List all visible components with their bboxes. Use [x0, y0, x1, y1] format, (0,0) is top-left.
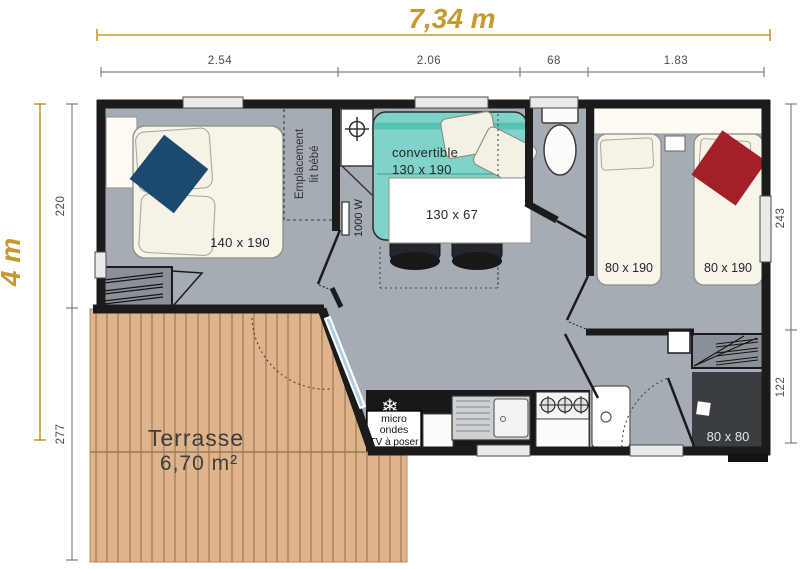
toilet-bowl — [544, 125, 576, 175]
wall-column — [668, 331, 690, 353]
microwave-label-3: TV à poser — [370, 437, 420, 448]
bed-twin-1-label: 80 x 190 — [605, 261, 653, 275]
heater-label: 1000 W — [353, 198, 365, 237]
window — [630, 445, 683, 456]
microwave-label-2: ondes — [380, 424, 409, 436]
cabinet — [536, 419, 589, 448]
terrace-name: Terrasse — [148, 425, 244, 451]
nightstand — [665, 136, 685, 151]
dim-right-1: 243 — [775, 208, 787, 229]
baby-bed-label-1: Emplacement — [294, 128, 306, 199]
cabinet — [423, 414, 453, 448]
window — [183, 97, 243, 108]
floor-plan-svg: 140 x 190 Emplacement lit bébé 1000 W co… — [0, 0, 800, 569]
sofa-label-1: convertible — [392, 145, 458, 160]
dim-left-2: 277 — [55, 424, 67, 445]
stove — [536, 392, 589, 448]
baby-bed-label-2: lit bébé — [309, 145, 321, 182]
window — [415, 97, 488, 108]
pillow — [600, 138, 653, 171]
showerhead-icon — [696, 401, 711, 416]
wc — [542, 106, 578, 175]
table-label: 130 x 67 — [426, 207, 478, 222]
dim-top-3: 68 — [547, 55, 561, 67]
dim-top-2: 2.06 — [417, 55, 441, 67]
terrace-area: 6,70 m² — [160, 452, 238, 475]
kitchen: ❄ micro ondes TV à poser — [366, 390, 590, 451]
dim-right-2: 122 — [775, 377, 787, 398]
floor-plan-page: 140 x 190 Emplacement lit bébé 1000 W co… — [0, 0, 800, 569]
dim-top-1: 2.54 — [208, 55, 232, 67]
entry-step — [728, 453, 768, 462]
electric-heater — [342, 202, 349, 235]
window — [95, 252, 106, 278]
window — [477, 445, 530, 456]
width-title: 7,34 m — [408, 3, 495, 34]
bed-twin-2-label: 80 x 190 — [704, 261, 752, 275]
dim-left-1: 220 — [55, 196, 67, 217]
height-title: 4 m — [0, 238, 26, 287]
shower-label: 80 x 80 — [707, 429, 750, 444]
headboard-shelf — [594, 108, 762, 134]
bed-master-label: 140 x 190 — [210, 235, 270, 250]
sink — [452, 396, 530, 440]
dim-top-4: 1.83 — [664, 55, 688, 67]
window — [530, 97, 578, 108]
window — [760, 196, 771, 262]
sofa-label-2: 130 x 190 — [392, 162, 452, 177]
toilet-tank — [542, 106, 578, 123]
